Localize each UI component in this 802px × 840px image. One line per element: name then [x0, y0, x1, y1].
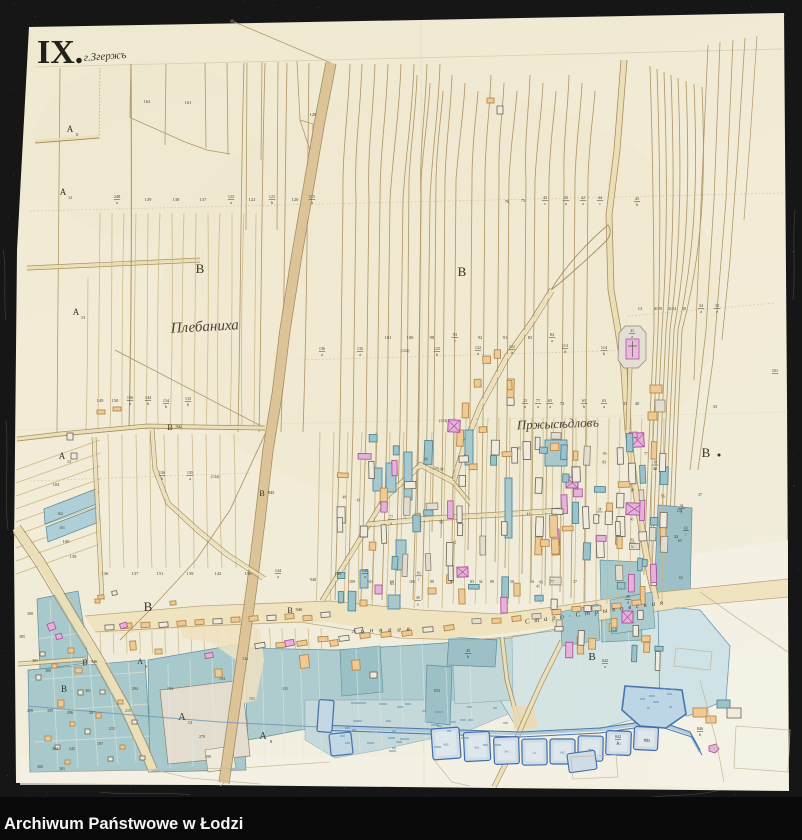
- svg-text:101: 101: [385, 335, 392, 340]
- svg-text:a: a: [537, 404, 539, 409]
- svg-text:309: 309: [47, 708, 53, 713]
- svg-text:77: 77: [389, 515, 393, 519]
- svg-text:341: 341: [504, 750, 509, 754]
- svg-text:c: c: [544, 201, 546, 206]
- svg-text:34: 34: [598, 508, 602, 512]
- svg-text:B: B: [61, 684, 67, 694]
- svg-text:297: 297: [89, 710, 95, 715]
- svg-text:842: 842: [602, 658, 608, 663]
- svg-text:B: B: [458, 264, 467, 279]
- svg-text:104: 104: [677, 509, 683, 513]
- svg-text:101: 101: [772, 368, 778, 373]
- svg-text:IX.: IX.: [37, 34, 83, 71]
- svg-text:946: 946: [91, 659, 99, 664]
- svg-text:215: 215: [109, 726, 115, 731]
- svg-text:18: 18: [630, 489, 634, 493]
- svg-text:41: 41: [630, 517, 634, 521]
- svg-text:77: 77: [644, 452, 648, 456]
- svg-text:102: 102: [57, 512, 63, 516]
- svg-text:a: a: [477, 351, 479, 356]
- svg-text:a: a: [311, 200, 313, 205]
- svg-text:45: 45: [626, 594, 630, 599]
- svg-text:144: 144: [145, 395, 152, 400]
- svg-text:49: 49: [342, 496, 346, 500]
- svg-text:301: 301: [59, 766, 65, 771]
- svg-text:300: 300: [45, 668, 51, 673]
- svg-text:137: 137: [132, 571, 140, 576]
- svg-text:63: 63: [582, 398, 586, 403]
- svg-text:134: 134: [163, 398, 170, 403]
- svg-text:662: 662: [560, 751, 565, 755]
- svg-text:83: 83: [631, 539, 635, 543]
- svg-text:128: 128: [310, 112, 318, 117]
- svg-text:120: 120: [292, 197, 300, 202]
- svg-text:115: 115: [309, 194, 315, 199]
- svg-text:49: 49: [416, 596, 420, 600]
- svg-text:(124): (124): [439, 419, 448, 423]
- svg-text:a: a: [359, 352, 361, 357]
- svg-text:23: 23: [523, 398, 527, 403]
- svg-text:A: A: [67, 124, 74, 134]
- svg-text:76: 76: [505, 199, 510, 204]
- svg-text:136: 136: [102, 571, 110, 576]
- svg-text:a: a: [549, 404, 551, 409]
- svg-text:12: 12: [68, 195, 72, 200]
- svg-text:a: a: [277, 574, 279, 579]
- svg-text:37: 37: [698, 492, 702, 497]
- svg-text:45: 45: [466, 648, 470, 653]
- svg-text:c: c: [454, 338, 456, 343]
- svg-text:a: a: [524, 404, 526, 409]
- svg-text:13: 13: [67, 459, 71, 464]
- svg-text:96: 96: [439, 520, 443, 524]
- svg-text:142: 142: [215, 571, 222, 576]
- svg-text:41: 41: [536, 585, 540, 589]
- svg-text:b: b: [436, 352, 438, 357]
- svg-text:123: 123: [228, 194, 234, 199]
- svg-text:49: 49: [424, 457, 428, 461]
- svg-text:32: 32: [653, 466, 658, 471]
- svg-text:73: 73: [560, 401, 565, 406]
- svg-text:150: 150: [112, 398, 120, 403]
- svg-text:a: a: [189, 476, 191, 481]
- svg-text:98: 98: [430, 335, 435, 340]
- svg-text:104: 104: [438, 468, 444, 472]
- svg-text:A: A: [178, 712, 186, 723]
- svg-text:136: 136: [159, 470, 165, 475]
- svg-text:101: 101: [59, 526, 65, 530]
- svg-text:300: 300: [37, 764, 43, 769]
- svg-text:385: 385: [19, 634, 25, 639]
- svg-text:945: 945: [268, 490, 276, 495]
- svg-text:245: 245: [69, 746, 75, 751]
- svg-text:77: 77: [550, 579, 554, 584]
- svg-text:42: 42: [581, 195, 585, 200]
- svg-text:248: 248: [114, 194, 120, 199]
- svg-text:139: 139: [145, 197, 153, 202]
- svg-text:299: 299: [27, 708, 33, 713]
- svg-text:58: 58: [510, 579, 514, 584]
- svg-text:a: a: [321, 352, 323, 357]
- svg-text:b: b: [583, 404, 585, 409]
- svg-text:101: 101: [367, 579, 373, 584]
- svg-text:131: 131: [282, 686, 288, 691]
- svg-text:B: B: [702, 445, 711, 460]
- svg-text:40: 40: [635, 401, 640, 406]
- svg-text:a: a: [116, 200, 118, 205]
- svg-text:b: b: [187, 402, 189, 407]
- svg-text:13: 13: [81, 315, 85, 320]
- svg-text:299: 299: [205, 754, 211, 759]
- svg-text:B: B: [259, 489, 264, 498]
- svg-text:133: 133: [185, 396, 191, 401]
- svg-text:122: 122: [249, 197, 256, 202]
- svg-text:63: 63: [678, 539, 682, 543]
- svg-text:63: 63: [684, 526, 688, 530]
- svg-text:a: a: [129, 401, 131, 406]
- svg-text:194: 194: [167, 686, 173, 691]
- svg-text:b: b: [699, 732, 701, 737]
- svg-text:56: 56: [530, 579, 534, 584]
- svg-text:162: 162: [144, 99, 151, 104]
- svg-text:93: 93: [453, 332, 457, 337]
- svg-text:A: A: [60, 187, 67, 197]
- svg-text:302: 302: [52, 746, 58, 751]
- svg-text:122: 122: [475, 345, 481, 350]
- svg-text:151: 151: [157, 571, 164, 576]
- svg-text:B: B: [82, 658, 87, 667]
- svg-text:121: 121: [509, 344, 515, 349]
- svg-text:89: 89: [490, 579, 494, 584]
- svg-text:A: A: [137, 657, 143, 666]
- svg-text:92: 92: [478, 335, 483, 340]
- svg-text:135: 135: [362, 568, 368, 573]
- svg-text:151: 151: [249, 696, 255, 701]
- svg-text:13: 13: [638, 306, 643, 311]
- svg-text:156: 156: [245, 571, 253, 576]
- svg-text:136: 136: [319, 346, 325, 351]
- svg-text:b: b: [617, 740, 619, 745]
- svg-text:b: b: [603, 351, 605, 356]
- svg-text:301: 301: [85, 688, 91, 693]
- svg-text:308: 308: [27, 611, 33, 616]
- svg-text:294: 294: [132, 686, 138, 691]
- svg-text:B: B: [144, 599, 153, 614]
- svg-text:Пржысѣдловъ: Пржысѣдловъ: [516, 415, 600, 433]
- svg-text:b: b: [147, 401, 149, 406]
- svg-text:194: 194: [219, 676, 225, 681]
- svg-text:844: 844: [644, 739, 650, 743]
- svg-text:113: 113: [562, 343, 568, 348]
- svg-text:33: 33: [715, 303, 719, 308]
- svg-text:43: 43: [630, 329, 634, 333]
- svg-text:135: 135: [187, 470, 193, 475]
- svg-text:38: 38: [682, 307, 686, 311]
- svg-text:296: 296: [67, 710, 73, 715]
- svg-text:17: 17: [573, 579, 577, 584]
- svg-text:100: 100: [407, 335, 415, 340]
- svg-text:279: 279: [199, 734, 205, 739]
- svg-text:b: b: [631, 545, 633, 549]
- svg-text:33: 33: [713, 404, 718, 409]
- svg-text:83: 83: [417, 572, 421, 576]
- svg-text:B: B: [196, 261, 205, 276]
- svg-text:109: 109: [349, 579, 355, 584]
- svg-text:83: 83: [539, 581, 543, 585]
- svg-text:34: 34: [479, 580, 483, 584]
- svg-text:32: 32: [674, 534, 679, 539]
- svg-text:9: 9: [145, 664, 147, 669]
- svg-text:833: 833: [434, 688, 440, 693]
- svg-text:946: 946: [296, 607, 304, 612]
- svg-text:43: 43: [543, 195, 547, 200]
- svg-text:b: b: [271, 200, 273, 205]
- svg-text:95: 95: [603, 452, 607, 456]
- svg-text:b: b: [165, 404, 167, 409]
- svg-text:11: 11: [75, 132, 79, 137]
- svg-text:Archiwum Państwowe w Łodzi: Archiwum Państwowe w Łodzi: [4, 815, 243, 833]
- svg-text:34 34: 34 34: [668, 307, 677, 311]
- svg-text:(124): (124): [401, 348, 410, 353]
- svg-text:91: 91: [503, 335, 508, 340]
- svg-text:34: 34: [680, 504, 684, 508]
- svg-text:114: 114: [601, 345, 608, 350]
- svg-text:56: 56: [661, 495, 665, 499]
- svg-text:83: 83: [528, 335, 533, 340]
- svg-text:215: 215: [125, 708, 131, 713]
- svg-text:63: 63: [602, 398, 606, 403]
- svg-text:a: a: [603, 404, 605, 409]
- svg-text:13: 13: [188, 720, 193, 725]
- svg-text:98: 98: [430, 579, 434, 584]
- svg-text:63: 63: [390, 582, 394, 586]
- svg-text:125: 125: [434, 346, 440, 351]
- svg-text:135: 135: [357, 346, 363, 351]
- svg-text:83: 83: [470, 579, 474, 584]
- svg-text:156: 156: [127, 395, 133, 400]
- svg-text:41: 41: [533, 751, 537, 755]
- svg-text:B: B: [287, 606, 292, 615]
- svg-text:a: a: [364, 574, 366, 579]
- svg-text:139: 139: [187, 571, 195, 576]
- svg-text:a: a: [604, 664, 606, 669]
- svg-text:a: a: [230, 200, 232, 205]
- svg-text:(134): (134): [211, 474, 220, 479]
- svg-text:144: 144: [275, 568, 282, 573]
- svg-text:45: 45: [635, 196, 639, 201]
- svg-text:93: 93: [450, 579, 454, 584]
- svg-text:661: 661: [475, 746, 480, 750]
- svg-text:a: a: [551, 338, 553, 343]
- svg-text:197: 197: [97, 741, 103, 746]
- svg-text:A: A: [59, 451, 66, 461]
- svg-text:45: 45: [564, 195, 568, 200]
- svg-text:948: 948: [310, 577, 316, 582]
- svg-text:40 39: 40 39: [654, 307, 663, 311]
- svg-text:149: 149: [97, 398, 105, 403]
- svg-text:134: 134: [242, 656, 248, 661]
- svg-text:a: a: [565, 201, 567, 206]
- svg-text:660: 660: [444, 743, 449, 747]
- svg-text:a: a: [700, 309, 702, 314]
- svg-text:100: 100: [63, 539, 71, 544]
- svg-text:846: 846: [697, 726, 703, 731]
- svg-text:a: a: [582, 201, 584, 206]
- svg-text:A: A: [73, 307, 80, 317]
- svg-text:161: 161: [185, 100, 192, 105]
- svg-text:b: b: [161, 476, 163, 481]
- svg-text:c: c: [599, 201, 601, 206]
- svg-text:63: 63: [679, 576, 683, 580]
- svg-text:942: 942: [176, 424, 183, 429]
- svg-text:B: B: [588, 651, 595, 663]
- svg-text:83: 83: [602, 460, 606, 464]
- svg-text:77: 77: [536, 398, 540, 403]
- svg-text:381: 381: [32, 658, 38, 663]
- svg-text:41: 41: [527, 513, 531, 517]
- svg-text:130: 130: [335, 571, 343, 576]
- svg-text:121: 121: [269, 194, 275, 199]
- svg-text:41: 41: [357, 498, 361, 502]
- svg-text:b: b: [467, 654, 469, 659]
- svg-text:18: 18: [653, 461, 657, 465]
- svg-text:75: 75: [521, 198, 526, 203]
- svg-text:103: 103: [409, 579, 415, 584]
- svg-text:33: 33: [623, 401, 628, 406]
- svg-text:65: 65: [548, 398, 552, 403]
- svg-text:12: 12: [452, 540, 456, 544]
- svg-text:a: a: [511, 350, 513, 355]
- svg-text:b: b: [636, 202, 638, 207]
- svg-text:842: 842: [615, 734, 621, 739]
- svg-text:104: 104: [53, 482, 61, 487]
- svg-text:B: B: [167, 423, 172, 432]
- svg-text:A: A: [259, 731, 267, 742]
- svg-text:41: 41: [517, 447, 521, 451]
- svg-text:139: 139: [70, 554, 78, 559]
- svg-text:138: 138: [173, 197, 181, 202]
- svg-text:137: 137: [200, 197, 208, 202]
- svg-text:e: e: [716, 309, 718, 314]
